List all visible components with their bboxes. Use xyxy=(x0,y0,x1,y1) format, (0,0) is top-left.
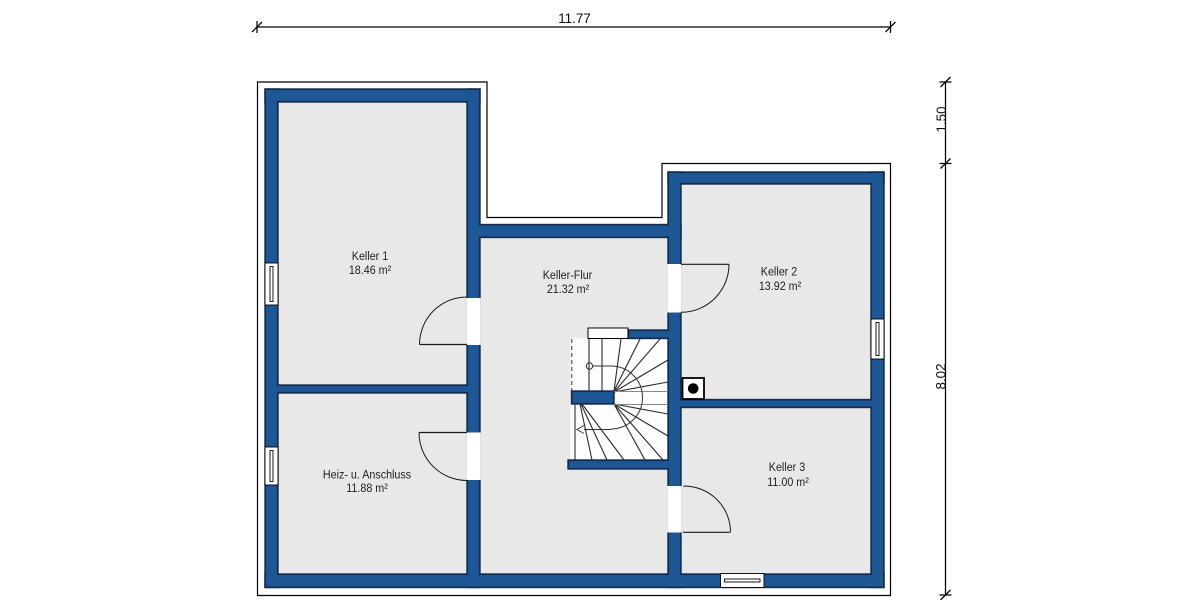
svg-text:Keller 3: Keller 3 xyxy=(769,461,805,474)
svg-text:Keller 2: Keller 2 xyxy=(761,266,797,279)
svg-text:11.00 m²: 11.00 m² xyxy=(767,476,809,489)
svg-text:Keller-Flur: Keller-Flur xyxy=(543,269,593,282)
svg-text:11.77: 11.77 xyxy=(558,11,591,26)
svg-text:1.50: 1.50 xyxy=(934,106,949,132)
svg-text:Keller 1: Keller 1 xyxy=(352,250,388,263)
svg-text:13.92 m²: 13.92 m² xyxy=(759,280,802,293)
svg-text:11.88 m²: 11.88 m² xyxy=(346,482,388,495)
svg-text:18.46 m²: 18.46 m² xyxy=(349,264,392,277)
svg-text:8.02: 8.02 xyxy=(934,363,949,389)
svg-text:21.32 m²: 21.32 m² xyxy=(547,283,590,296)
svg-text:Heiz- u. Anschluss: Heiz- u. Anschluss xyxy=(323,469,411,482)
